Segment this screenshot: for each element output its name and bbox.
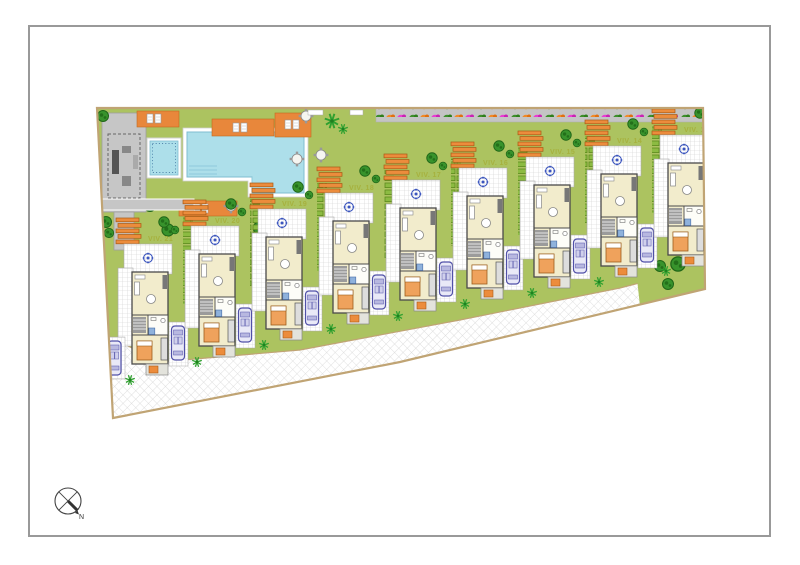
villa-label: VIV. 19 (282, 201, 307, 208)
villa-label: VIV. 13 (684, 127, 709, 134)
north-arrow: N (55, 488, 84, 521)
screenshot-canvas: VIV. 21 VIV. 20 VIV. 19 VIV. 18 VIV. 17 … (0, 0, 800, 565)
footpath (97, 199, 194, 210)
guest-parking (105, 337, 125, 379)
bench (350, 110, 363, 115)
villa-label: VIV. 21 (148, 236, 173, 243)
villa-label: VIV. 20 (215, 218, 240, 225)
villa-label: VIV. 17 (416, 172, 441, 179)
bench (308, 110, 323, 115)
site-area: VIV. 21 VIV. 20 VIV. 19 VIV. 18 VIV. 17 … (96, 103, 724, 420)
service-slab (102, 113, 146, 212)
kids-pool (147, 138, 181, 178)
villa-label: VIV. 14 (617, 138, 642, 145)
site-plan-svg: VIV. 21 VIV. 20 VIV. 19 VIV. 18 VIV. 17 … (0, 0, 800, 565)
villa-label: VIV. 15 (550, 149, 575, 156)
villa-label: VIV. 16 (483, 160, 508, 167)
villa-label: VIV. 18 (349, 185, 374, 192)
north-label: N (79, 514, 84, 521)
